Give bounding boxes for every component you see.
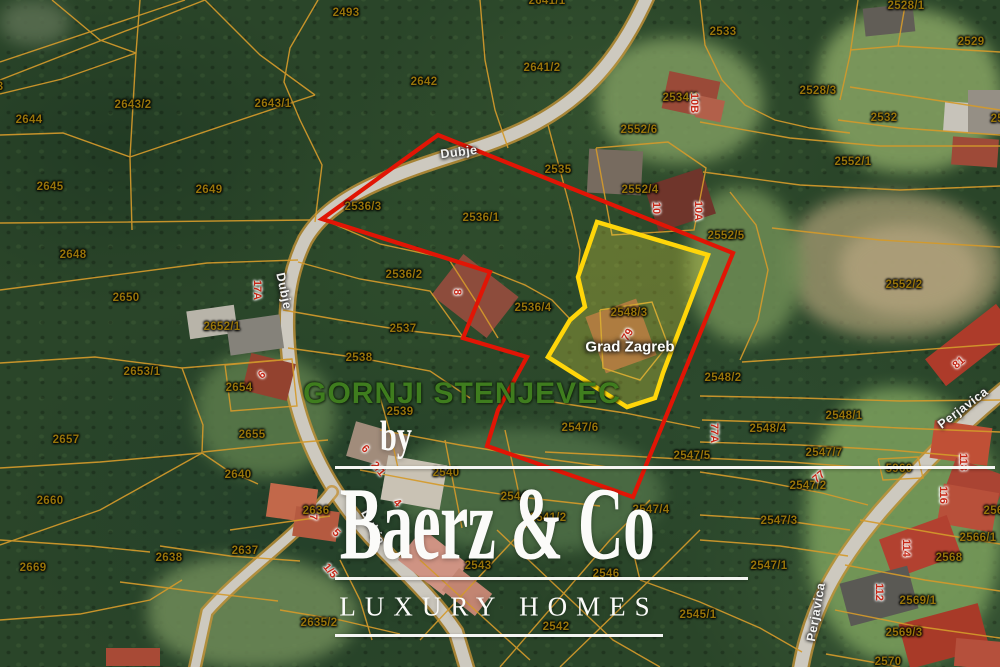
municipality-label: Grad Zagreb	[585, 339, 674, 356]
road-name: Perjavica	[935, 385, 991, 432]
road-name: Dubje	[440, 143, 479, 161]
watermark-tagline: LUXURY HOMES	[339, 592, 658, 623]
watermark-brand: Baerz & Co	[340, 465, 655, 584]
road-name: Dubje	[273, 271, 294, 310]
region-name-watermark: GORNJI STENJEVEC	[303, 377, 621, 411]
road-name: Perjavica	[804, 582, 828, 643]
watermark-divider-middle	[335, 577, 748, 580]
cadastral-satellite-map[interactable]: 24932641/126432643/22643/1264426422641/2…	[0, 0, 1000, 667]
watermark-by: by	[380, 413, 412, 461]
watermark-divider-bottom	[335, 634, 663, 637]
